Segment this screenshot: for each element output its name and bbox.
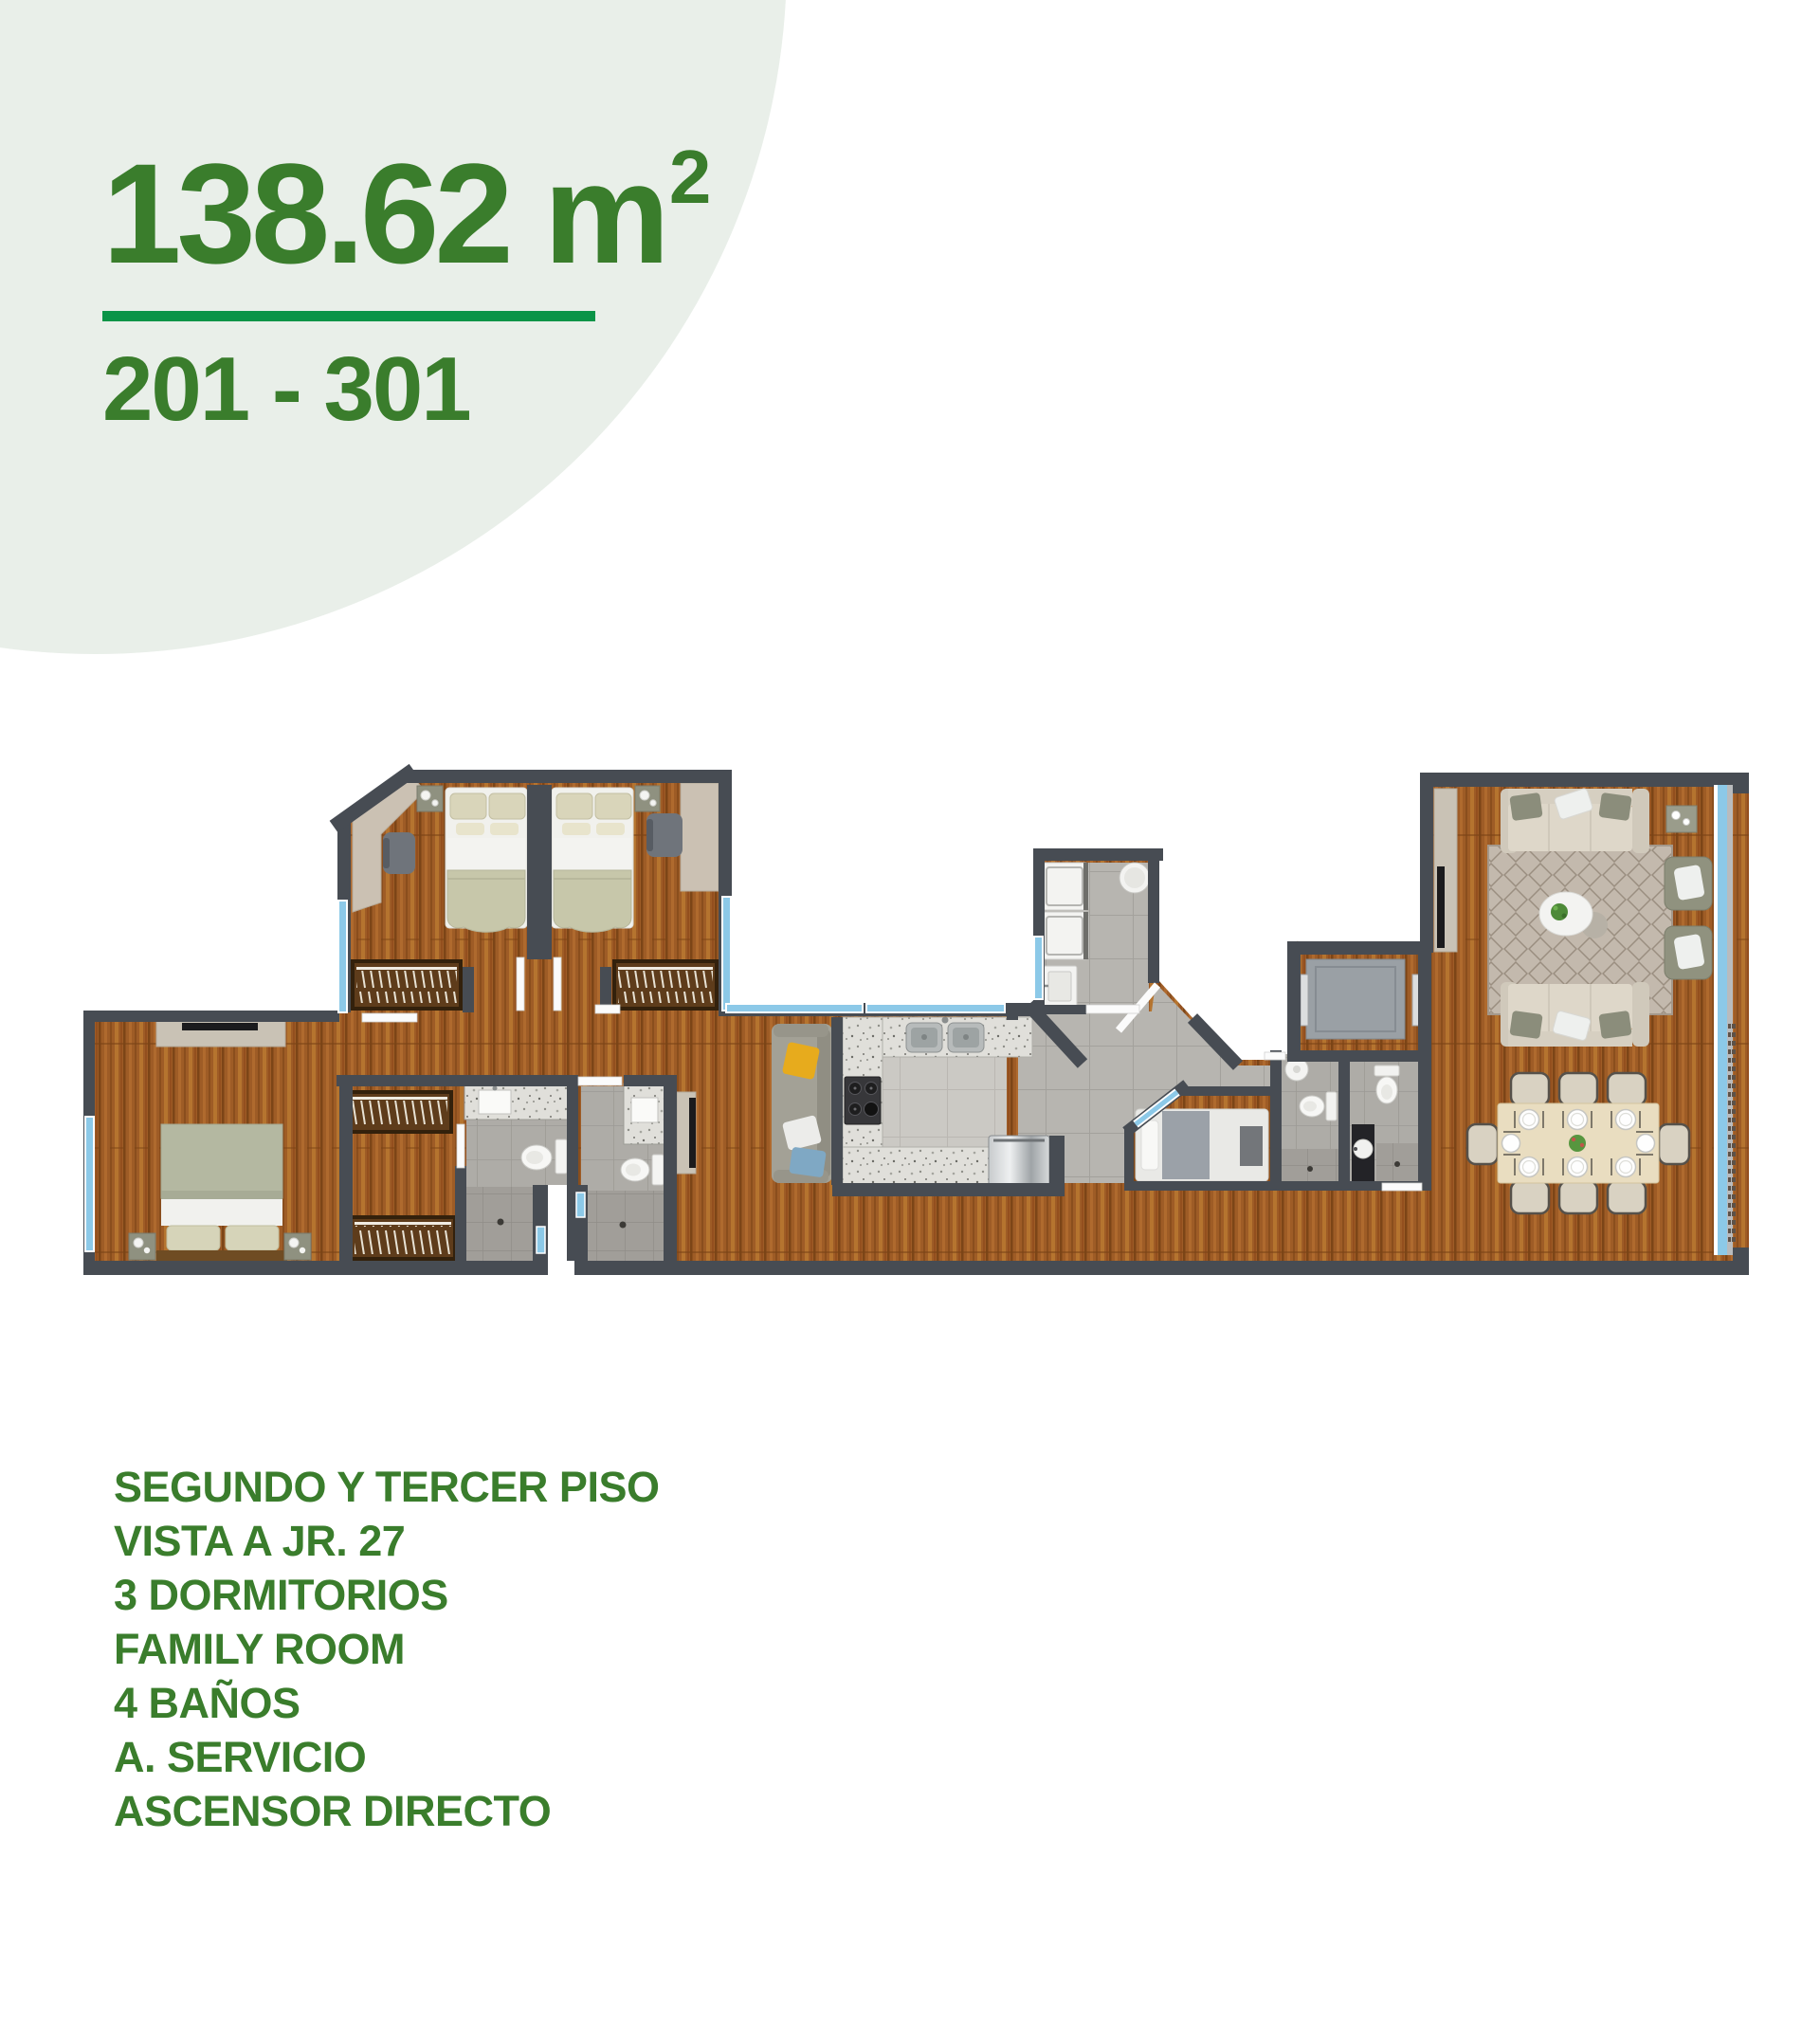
nightstand: [635, 786, 660, 811]
elevator-car: [1306, 959, 1405, 1039]
window: [338, 901, 347, 1012]
floor-plan: [0, 0, 1820, 2040]
stove-icon: [845, 1077, 881, 1124]
armchair: [1665, 926, 1712, 979]
desk: [681, 783, 719, 891]
washer-icon: [1042, 863, 1088, 910]
toilet-icon: [1374, 1066, 1399, 1103]
closet: [612, 959, 719, 1011]
pillow: [1141, 1120, 1158, 1170]
door-leaf: [517, 957, 524, 1011]
tv-icon: [1437, 866, 1445, 948]
side-table: [1666, 806, 1697, 832]
walk-in-closet-top: [341, 1090, 453, 1134]
sofa: [772, 1024, 832, 1183]
closet: [351, 959, 463, 1011]
vanity-sink: [631, 1098, 658, 1122]
window: [1034, 937, 1043, 999]
bed-double: [552, 788, 633, 932]
faucet-icon: [493, 1086, 498, 1091]
fridge-icon: [989, 1136, 1049, 1187]
door-opening: [1265, 1052, 1285, 1060]
outside-above-service: [1033, 756, 1163, 850]
elevator-door-left: [1301, 974, 1308, 1026]
nightstand: [417, 786, 443, 811]
tv-icon: [182, 1023, 258, 1030]
bedside-pad: [1240, 1126, 1263, 1166]
window: [537, 1227, 545, 1253]
shower-drain-icon: [1307, 1166, 1313, 1172]
shower-drain-icon: [1394, 1161, 1400, 1167]
window: [726, 1004, 863, 1012]
door-leaf: [362, 1013, 417, 1022]
outside-above-elevator: [1299, 756, 1420, 944]
window: [722, 897, 731, 1011]
door-opening: [1382, 1183, 1422, 1191]
tv-icon: [689, 1098, 696, 1168]
elevator: [1301, 959, 1420, 1039]
window: [866, 1004, 1005, 1012]
door-leaf: [457, 1124, 464, 1168]
counter-bottom: [843, 1147, 989, 1185]
sofa-top: [1501, 788, 1649, 853]
bed-double: [446, 788, 527, 932]
nightstand: [284, 1233, 311, 1260]
flyer-page: { "header": { "area_label": "138.62 m", …: [0, 0, 1820, 2040]
nightstand: [129, 1233, 155, 1260]
centerpiece-plant-icon: [1569, 1135, 1586, 1152]
walk-in-closet-bottom: [349, 1215, 457, 1261]
shower-drain-icon: [620, 1222, 627, 1229]
window: [85, 1117, 94, 1251]
desk-chair-back: [646, 819, 653, 851]
laundry-tub-icon: [1119, 863, 1150, 893]
desk-chair-back: [383, 838, 390, 868]
window: [576, 1193, 585, 1217]
door-leaf: [554, 957, 561, 1011]
vanity-sink: [479, 1090, 511, 1114]
shower-drain-icon: [498, 1219, 504, 1226]
armchair: [1665, 857, 1712, 910]
door-leaf: [595, 1005, 620, 1013]
sofa-bottom: [1501, 982, 1649, 1047]
blanket: [1162, 1111, 1210, 1179]
door-opening: [578, 1077, 622, 1085]
service-bedroom: [1136, 1109, 1268, 1181]
plant-icon: [1551, 903, 1568, 920]
door-opening: [1086, 1005, 1139, 1013]
outside-notch: [732, 756, 1033, 1005]
balcony-railing-hatch: [1728, 1021, 1736, 1245]
dryer-icon: [1042, 912, 1088, 959]
